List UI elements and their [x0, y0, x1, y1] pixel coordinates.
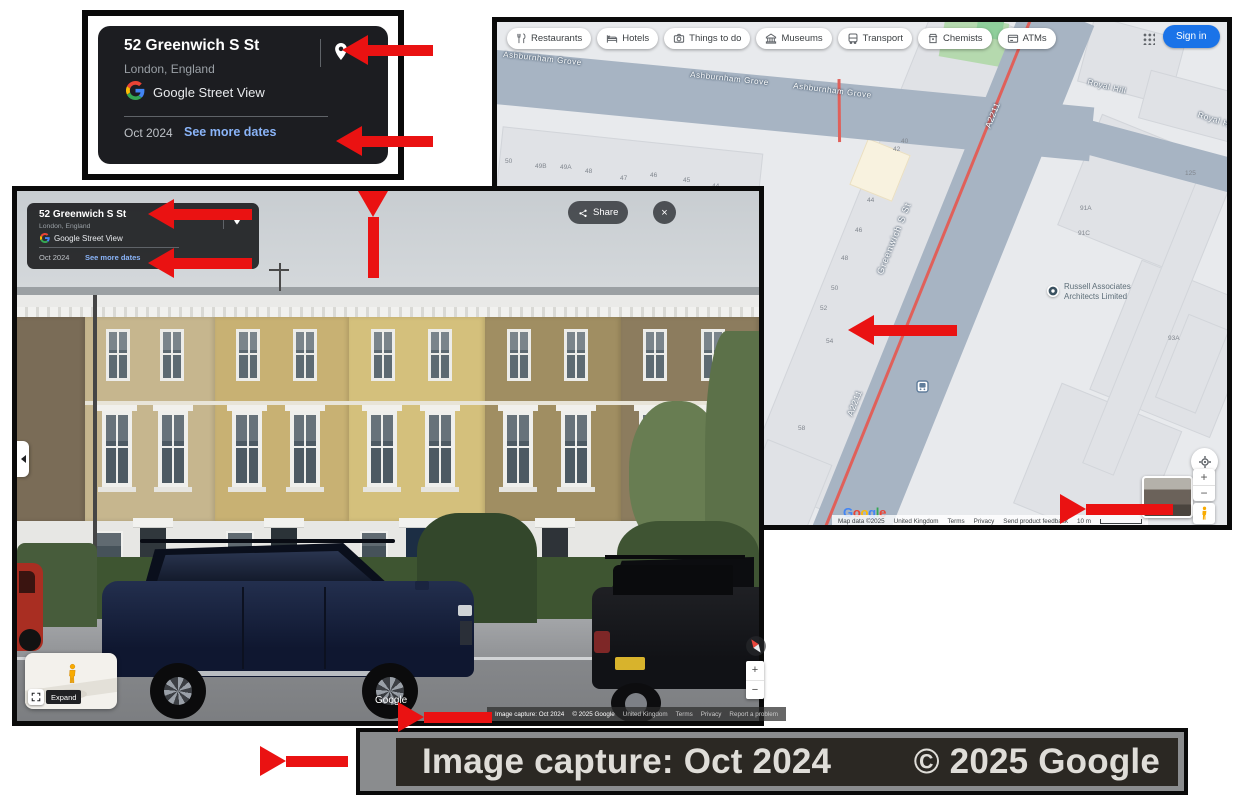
building-window [102, 411, 132, 487]
poi-label: Russell AssociatesArchitects Limited [1064, 282, 1131, 301]
building-window [290, 411, 320, 487]
ann-card-divider [124, 116, 328, 117]
photo-detail [140, 539, 395, 543]
chip-things-to-do[interactable]: Things to do [664, 28, 750, 49]
chip-museums[interactable]: Museums [756, 28, 831, 49]
collapse-panel-tab[interactable] [17, 441, 29, 477]
chip-label: ATMs [1023, 33, 1047, 44]
sv-copyright: © 2025 Google [572, 711, 614, 718]
zoom-in-button[interactable]: + [1193, 469, 1215, 486]
photo-detail [19, 629, 41, 651]
strip-capture-text: Image capture: Oct 2024 [422, 742, 831, 782]
photo-detail [460, 621, 472, 645]
building-window [425, 411, 455, 487]
expand-tooltip: Expand [46, 690, 81, 704]
building-window [158, 411, 188, 487]
window-sill [421, 487, 459, 492]
window-sill [557, 487, 595, 492]
poi-russell-associates[interactable] [1046, 284, 1060, 298]
sv-report-problem-link[interactable]: Report a problem [729, 711, 778, 718]
photo-detail [615, 657, 645, 670]
parapet [17, 295, 759, 307]
photo-detail [594, 631, 610, 653]
building-number: 42 [893, 146, 900, 153]
map-attribution: Map data ©2025 United Kingdom Terms Priv… [832, 515, 1148, 525]
pegman-icon [1200, 506, 1209, 521]
building-window [561, 411, 591, 487]
ann-card-date: Oct 2024 [124, 126, 173, 140]
map-feedback-link[interactable]: Send product feedback [1003, 518, 1068, 525]
door-pediment [133, 518, 173, 528]
photo-detail [415, 581, 429, 590]
hotels-icon [606, 32, 618, 45]
tv-antenna [279, 263, 281, 291]
ann-see-more-dates-link[interactable]: See more dates [184, 125, 276, 139]
building-number: 91A [1080, 205, 1092, 212]
photo-detail [507, 415, 529, 441]
building-window [643, 329, 667, 381]
photo-detail [19, 571, 35, 593]
building-number: 50 [505, 158, 512, 165]
ann-card-title: 52 Greenwich S St [124, 37, 259, 55]
photo-detail [296, 332, 314, 350]
building-number: 93A [1168, 335, 1180, 342]
photo-detail [565, 415, 587, 441]
map-region-text: United Kingdom [894, 518, 939, 525]
sign-in-button[interactable]: Sign in [1163, 25, 1220, 48]
streetview-panel: 52 Greenwich S St London, England Google… [12, 186, 764, 726]
door-pediment [535, 518, 575, 528]
window-sill [154, 487, 192, 492]
window-sill [499, 487, 537, 492]
sv-card-date: Oct 2024 [39, 253, 69, 262]
chip-restaurants[interactable]: Restaurants [507, 28, 591, 49]
compass[interactable] [745, 635, 767, 657]
photo-detail [605, 555, 745, 559]
chip-label: Museums [781, 33, 822, 44]
building-window [564, 329, 588, 381]
photo-detail [431, 332, 449, 350]
building-number: 46 [855, 227, 862, 234]
chip-label: Transport [863, 33, 903, 44]
building-window [232, 411, 262, 487]
sv-see-more-dates-link[interactable]: See more dates [85, 253, 140, 262]
photo-detail [592, 587, 759, 689]
building-number: 50 [831, 285, 838, 292]
bus-stop-icon[interactable] [916, 380, 929, 393]
map-privacy-link[interactable]: Privacy [974, 518, 995, 525]
building-number: 48 [841, 255, 848, 262]
building-window [367, 411, 397, 487]
share-label: Share [593, 207, 618, 218]
building-number: 52 [820, 305, 827, 312]
sv-privacy-link[interactable]: Privacy [701, 711, 722, 718]
sv-card-brand: Google Street View [54, 234, 123, 243]
photo-detail [613, 565, 733, 595]
poi-pin-icon [1046, 284, 1060, 298]
photo-detail [324, 587, 326, 669]
building-number: 91C [1078, 230, 1090, 237]
window-sill [363, 487, 401, 492]
zoom-out-button[interactable]: − [1193, 486, 1215, 502]
map-zoom-control: + − [1193, 469, 1215, 501]
door-pediment [264, 518, 304, 528]
ann-card-subtitle: London, England [124, 62, 215, 76]
chip-label: Restaurants [531, 33, 582, 44]
sv-region-text: United Kingdom [623, 711, 668, 718]
atms-icon [1007, 32, 1019, 45]
photo-detail [374, 332, 392, 350]
building-number: 46 [650, 172, 657, 179]
black-suv [589, 555, 759, 721]
sv-capture-date: Image capture: Oct 2024 [495, 711, 564, 718]
tv-antenna [269, 269, 289, 271]
building-window [428, 329, 452, 381]
map-data-text: Map data ©2025 [838, 518, 885, 525]
zoom-callout-panel: Image capture: Oct 2024 © 2025 Google [356, 728, 1188, 795]
photo-detail [646, 332, 664, 350]
streetview-photo[interactable] [17, 191, 759, 721]
sv-zoom-in-button[interactable]: + [746, 661, 764, 681]
building-number: 45 [683, 177, 690, 184]
photo-detail [458, 605, 472, 616]
building-window [507, 329, 531, 381]
photo-detail [510, 332, 528, 350]
building-number: 49A [560, 164, 572, 171]
minimap-pegman-icon[interactable] [66, 663, 79, 685]
my-location-icon [1198, 455, 1212, 469]
chemists-icon [927, 32, 939, 45]
building-window [236, 329, 260, 381]
photo-detail [164, 677, 192, 705]
building-number: 40 [901, 138, 908, 145]
chip-transport[interactable]: Transport [838, 28, 912, 49]
chip-label: Hotels [622, 33, 649, 44]
ann-card-brand: Google Street View [153, 85, 265, 100]
photo-detail [162, 415, 184, 441]
chip-label: Things to do [689, 33, 741, 44]
photo-detail [109, 332, 127, 350]
restaurants-icon [516, 32, 527, 45]
photo-detail [106, 415, 128, 441]
share-icon [578, 208, 588, 218]
house-facade [17, 317, 85, 521]
window-sill [98, 487, 136, 492]
red-car [17, 563, 43, 651]
building-number: 58 [798, 425, 805, 432]
building-number: 44 [867, 197, 874, 204]
museums-icon [765, 32, 777, 45]
category-chip-bar: Restaurants Hotels Things to do Museums … [507, 28, 1056, 49]
strip-copyright-text: © 2025 Google [914, 742, 1160, 782]
chip-hotels[interactable]: Hotels [597, 28, 658, 49]
map-scale-bar [1100, 519, 1142, 524]
ann-card-vdivider [320, 39, 321, 67]
sv-terms-link[interactable]: Terms [676, 711, 693, 718]
sv-zoom-out-button[interactable]: − [746, 681, 764, 700]
building-window [293, 329, 317, 381]
google-g-logo [40, 233, 50, 243]
photo-detail [429, 415, 451, 441]
photo-detail [150, 663, 206, 719]
apps-grid-icon[interactable] [1142, 32, 1155, 45]
zoom-callout-bar: Image capture: Oct 2024 © 2025 Google [396, 738, 1178, 786]
building-number: 48 [585, 168, 592, 175]
share-button[interactable]: Share [568, 201, 628, 224]
expand-button[interactable] [28, 689, 44, 705]
sv-card-title: 52 Greenwich S St [39, 209, 126, 220]
chip-label: Chemists [943, 33, 983, 44]
building-window [371, 329, 395, 381]
sv-attribution-bar: Image capture: Oct 2024 © 2025 Google Un… [487, 707, 786, 721]
chip-chemists[interactable]: Chemists [918, 28, 992, 49]
building-window [106, 329, 130, 381]
photo-detail [242, 587, 244, 669]
photo-detail [236, 415, 258, 441]
photo-detail [239, 332, 257, 350]
building-window [160, 329, 184, 381]
pegman-button[interactable] [1193, 503, 1215, 524]
building-number: 49B [535, 163, 547, 170]
composite-screenshot: 5049B49A48474645444042444648505254581259… [0, 0, 1237, 806]
building-number: 125 [1185, 170, 1196, 177]
sv-card-subtitle: London, England [39, 223, 90, 230]
photo-detail [102, 581, 474, 677]
photo-detail [567, 332, 585, 350]
building-window [503, 411, 533, 487]
building-number: 54 [826, 338, 833, 345]
window-sill [286, 487, 324, 492]
building-number: 47 [620, 175, 627, 182]
window-sill [228, 487, 266, 492]
photo-detail [163, 332, 181, 350]
dentil-cornice [17, 307, 759, 317]
things-to-do-icon [673, 32, 685, 45]
expand-icon [31, 692, 41, 702]
transport-icon [847, 32, 859, 45]
navy-suv [102, 539, 474, 719]
sv-zoom-control: + − [746, 661, 764, 699]
map-terms-link[interactable]: Terms [947, 518, 964, 525]
photo-detail [371, 415, 393, 441]
close-button[interactable]: × [653, 201, 676, 224]
google-g-logo [126, 81, 145, 100]
chip-atms[interactable]: ATMs [998, 28, 1056, 49]
photo-detail [294, 415, 316, 441]
chevron-left-icon [21, 455, 26, 463]
